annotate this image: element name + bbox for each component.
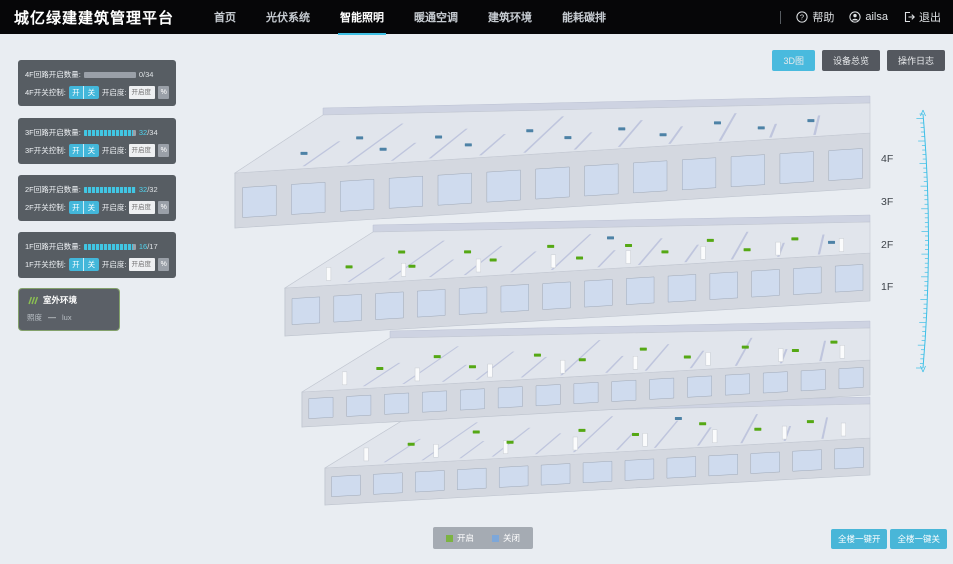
switch-on-button[interactable]: 开 <box>69 86 84 99</box>
illuminance-label: 照度 <box>27 312 42 323</box>
circuit-count-label: 2F回路开启数量: <box>25 184 81 195</box>
floor-label-3f: 3F <box>881 196 893 208</box>
help-link[interactable]: ? 帮助 <box>796 9 834 25</box>
percent-apply-button[interactable]: % <box>158 86 169 99</box>
switch-on-button[interactable]: 开 <box>69 201 84 214</box>
app-window: 城亿绿建建筑管理平台 首页 光伏系统 智能照明 暖通空调 建筑环境 能耗碳排 ?… <box>0 0 953 564</box>
legend-off-label: 关闭 <box>503 532 520 544</box>
circuit-progress-bar <box>84 130 136 136</box>
openness-input[interactable] <box>129 201 155 214</box>
switch-on-button[interactable]: 开 <box>69 258 84 271</box>
view-toolbar: 3D图 设备总览 操作日志 <box>772 50 945 71</box>
top-header: 城亿绿建建筑管理平台 首页 光伏系统 智能照明 暖通空调 建筑环境 能耗碳排 ?… <box>0 0 953 34</box>
legend-on-label: 开启 <box>457 532 474 544</box>
all-floors-off-button[interactable]: 全楼一键关 <box>890 529 947 549</box>
header-right: ? 帮助 ailsa 退出 <box>780 9 941 25</box>
circuit-total-count: /34 <box>147 128 157 137</box>
circuit-progress-bar <box>84 187 136 193</box>
illuminance-value: — <box>48 313 56 322</box>
logout-label: 退出 <box>919 9 941 25</box>
outdoor-environment-icon <box>27 296 39 305</box>
user-menu[interactable]: ailsa <box>849 11 888 23</box>
main-nav: 首页 光伏系统 智能照明 暖通空调 建筑环境 能耗碳排 <box>212 0 608 35</box>
outdoor-environment-panel: 室外环境 照度 — lux <box>18 288 120 331</box>
outdoor-title: 室外环境 <box>43 294 77 306</box>
nav-item-hvac[interactable]: 暖通空调 <box>412 0 460 35</box>
operation-log-button[interactable]: 操作日志 <box>887 50 945 71</box>
percent-apply-button[interactable]: % <box>158 144 169 157</box>
nav-item-pv-system[interactable]: 光伏系统 <box>264 0 312 35</box>
switch-off-button[interactable]: 关 <box>84 258 99 271</box>
circuit-open-count: 16 <box>139 242 147 251</box>
openness-label: 开启度: <box>102 87 127 98</box>
help-label: 帮助 <box>812 9 834 25</box>
switch-control-label: 2F开关控制: <box>25 202 66 213</box>
nav-item-home[interactable]: 首页 <box>212 0 238 35</box>
circuit-progress-bar <box>84 244 136 250</box>
floor-label-2f: 2F <box>881 239 893 251</box>
circuit-open-count: 32 <box>139 185 147 194</box>
openness-label: 开启度: <box>102 259 127 270</box>
floor-panel-1f: 1F回路开启数量: 16/17 1F开关控制: 开 关 开启度: % <box>18 232 176 278</box>
circuit-count-label: 1F回路开启数量: <box>25 241 81 252</box>
floor-label-4f: 4F <box>881 153 893 165</box>
openness-label: 开启度: <box>102 202 127 213</box>
percent-apply-button[interactable]: % <box>158 201 169 214</box>
username-label: ailsa <box>865 11 888 23</box>
circuit-count-label: 4F回路开启数量: <box>25 69 81 80</box>
svg-text:?: ? <box>800 13 804 22</box>
circuit-total-count: /32 <box>147 185 157 194</box>
logout-icon <box>903 11 915 23</box>
circuit-count-label: 3F回路开启数量: <box>25 127 81 138</box>
openness-input[interactable] <box>129 86 155 99</box>
header-divider <box>780 11 781 24</box>
circuit-progress-bar <box>84 72 136 78</box>
floor-panel-3f: 3F回路开启数量: 32/34 3F开关控制: 开 关 开启度: % <box>18 118 176 164</box>
logout-link[interactable]: 退出 <box>903 9 941 25</box>
switch-off-button[interactable]: 关 <box>84 86 99 99</box>
switch-off-button[interactable]: 关 <box>84 201 99 214</box>
legend-off-swatch <box>492 535 499 542</box>
floor-panel-4f: 4F回路开启数量: 0/34 4F开关控制: 开 关 开启度: % <box>18 60 176 106</box>
openness-input[interactable] <box>129 144 155 157</box>
circuit-total-count: /17 <box>147 242 157 251</box>
switch-control-label: 3F开关控制: <box>25 145 66 156</box>
user-icon <box>849 11 861 23</box>
circuit-open-count: 32 <box>139 128 147 137</box>
floor-scale-ruler <box>898 100 948 380</box>
all-floors-on-button[interactable]: 全楼一键开 <box>831 529 888 549</box>
openness-label: 开启度: <box>102 145 127 156</box>
switch-on-button[interactable]: 开 <box>69 144 84 157</box>
nav-item-smart-lighting[interactable]: 智能照明 <box>338 0 386 35</box>
nav-item-environment[interactable]: 建筑环境 <box>486 0 534 35</box>
circuit-total-count: /34 <box>143 70 153 79</box>
view-3d-button[interactable]: 3D图 <box>772 50 815 71</box>
bulk-buttons: 全楼一键开 全楼一键关 <box>831 529 947 549</box>
illuminance-unit: lux <box>62 313 72 322</box>
status-legend: 开启 关闭 <box>433 527 533 549</box>
legend-on-swatch <box>446 535 453 542</box>
openness-input[interactable] <box>129 258 155 271</box>
help-icon: ? <box>796 11 808 23</box>
switch-control-label: 1F开关控制: <box>25 259 66 270</box>
device-overview-button[interactable]: 设备总览 <box>822 50 880 71</box>
floor-label-1f: 1F <box>881 281 893 293</box>
percent-apply-button[interactable]: % <box>158 258 169 271</box>
floor-panel-2f: 2F回路开启数量: 32/32 2F开关控制: 开 关 开启度: % <box>18 175 176 221</box>
nav-item-energy-carbon[interactable]: 能耗碳排 <box>560 0 608 35</box>
app-title: 城亿绿建建筑管理平台 <box>14 7 174 28</box>
switch-off-button[interactable]: 关 <box>84 144 99 157</box>
switch-control-label: 4F开关控制: <box>25 87 66 98</box>
